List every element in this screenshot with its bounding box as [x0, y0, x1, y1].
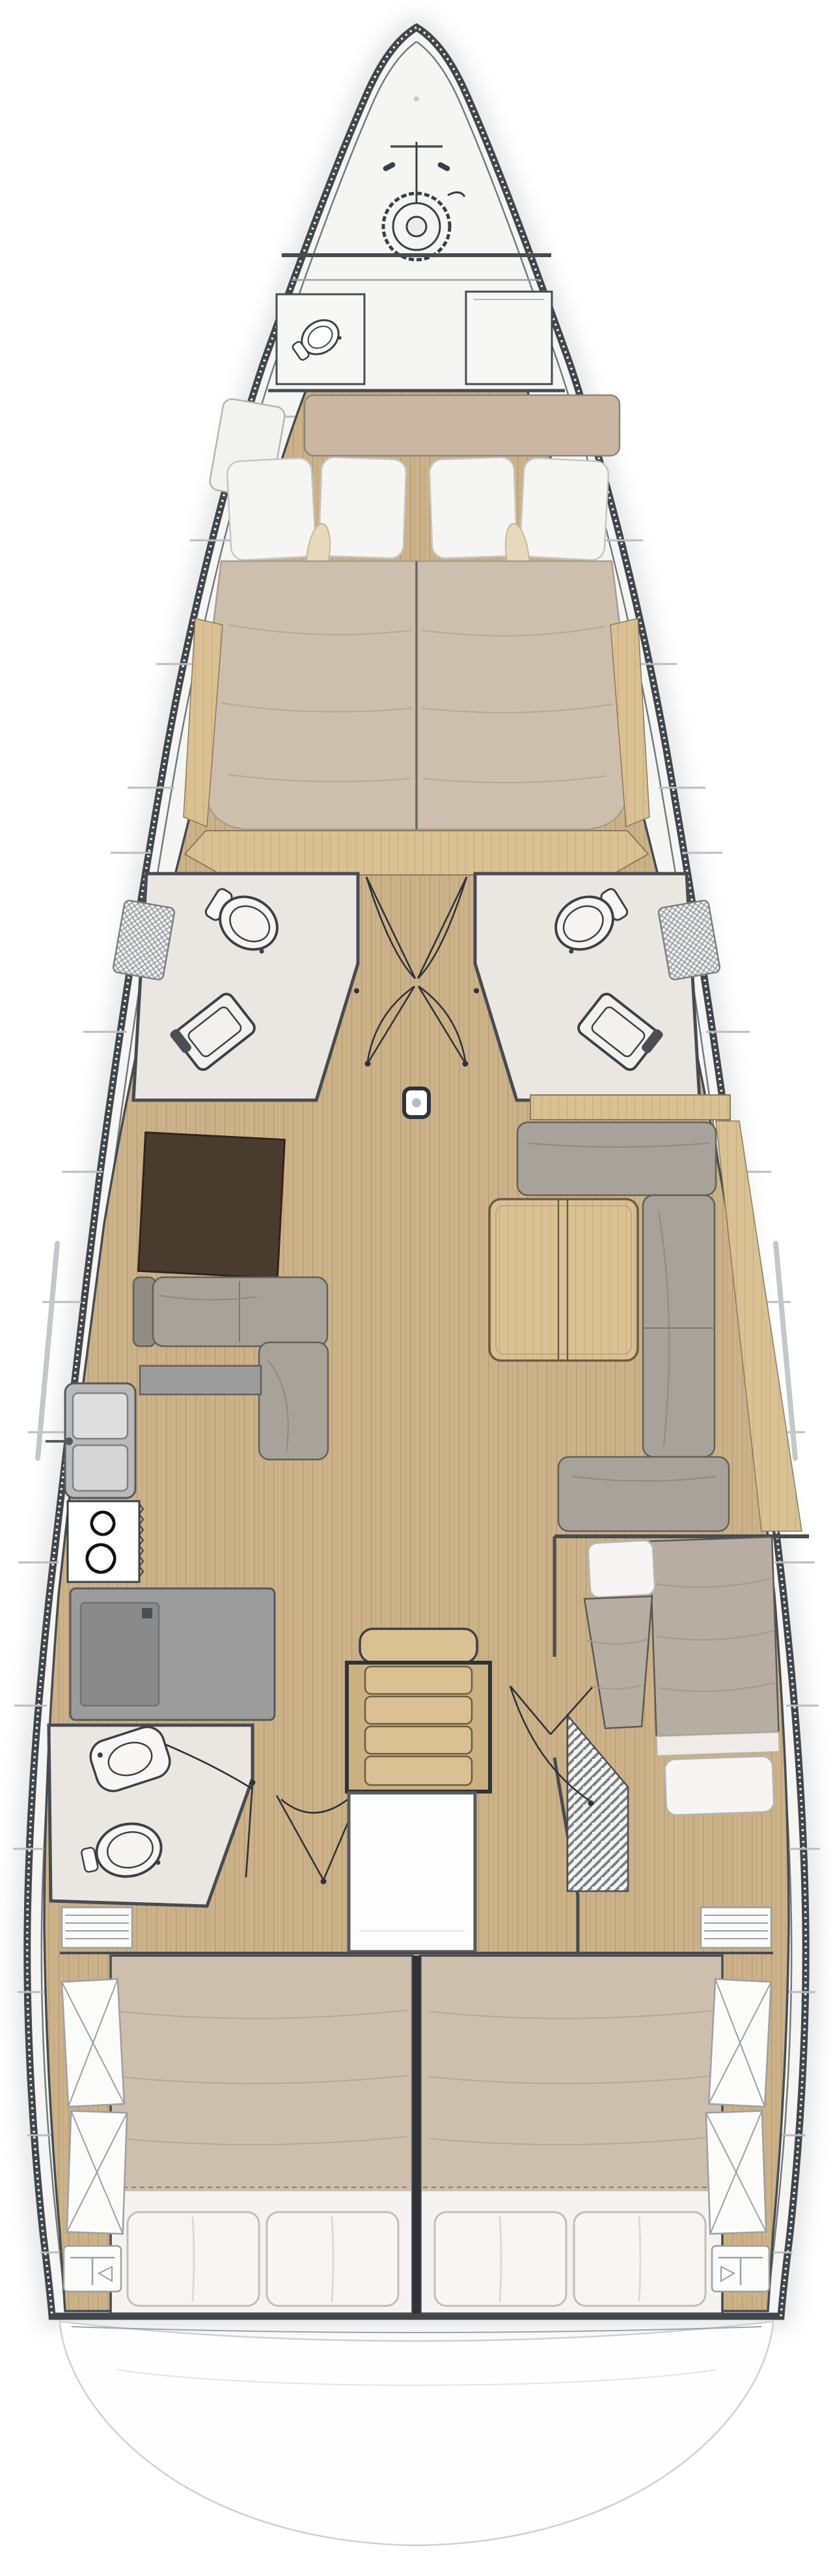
side-shelf-starboard [610, 618, 649, 827]
bed-pillows [226, 457, 609, 561]
aft-head-port [49, 1723, 256, 1906]
companionway-stairs [347, 1629, 490, 1952]
bunk-upper [584, 1540, 655, 1728]
headboard-cushion [305, 395, 620, 456]
bunk-lower [649, 1537, 782, 1816]
saloon [133, 1095, 802, 1531]
door-swing-icon [166, 1745, 253, 1877]
hull-window [38, 1243, 795, 1458]
aft-cabin-starboard-bed [420, 1956, 722, 2314]
hull-shelf-starboard [716, 1121, 802, 1531]
duvet-folds [221, 625, 612, 782]
stern-deck-fitting [64, 2246, 769, 2292]
sink-icon [46, 1383, 135, 1498]
head-port-forward [133, 874, 415, 1100]
toilet-icon [288, 313, 345, 367]
hull-shadow [27, 27, 806, 2316]
stern-beam-inner [72, 2327, 761, 2333]
aft-cabin-port-bed [111, 1956, 413, 2314]
aft-cabins [60, 1953, 773, 2314]
anchor-locker [382, 96, 465, 260]
windlass-icon [382, 142, 465, 260]
owner-bed-duvet [204, 561, 630, 829]
door-swing-icon [510, 1686, 592, 1801]
worktop [140, 1366, 261, 1394]
sideboard [530, 1095, 730, 1120]
crew-locker [466, 292, 552, 384]
crew-cabin [277, 255, 552, 384]
deck-vent-hatches [113, 900, 720, 980]
cabin-sole [44, 391, 789, 2311]
accent-pillow [502, 522, 532, 587]
side-shelf-port [184, 618, 223, 827]
stove-icon [68, 1501, 143, 1582]
door-swing-icon [277, 1784, 364, 1880]
hull-outline [27, 27, 806, 2316]
salon-table [489, 1199, 638, 1361]
louvre-locker-icon [62, 1907, 771, 1948]
owner-cabin-forward [184, 391, 649, 875]
bed-foot-step [185, 831, 648, 875]
aft-cabin-divider [413, 1956, 420, 2314]
mast-post-icon [404, 1088, 429, 1117]
head-starboard-forward [418, 874, 700, 1100]
sofa-port [133, 1277, 328, 1460]
hull-inner-line [42, 42, 791, 2308]
toe-rail [27, 27, 806, 2316]
crew-wc-room [277, 294, 364, 384]
sink-icon [86, 1723, 174, 1795]
yacht-floor-plan-canvas [0, 0, 833, 2576]
bunk-steps [567, 1715, 628, 1891]
sofa-starboard [517, 1122, 729, 1531]
transom-swim-platform [60, 2321, 773, 2545]
locker-x-icon [62, 1979, 771, 2234]
toilet-icon [77, 1818, 166, 1885]
accent-pillow [303, 522, 333, 587]
tv-cabinet [139, 1133, 285, 1279]
deck-seam-lines [13, 417, 820, 2252]
fridge [70, 1588, 275, 1720]
vanity-seat-cushion [208, 398, 286, 500]
bunk-cabin-starboard [510, 1536, 809, 1953]
galley-port [46, 1366, 275, 1720]
yacht-floor-plan [0, 0, 833, 2576]
engine-hatch [349, 1793, 475, 1952]
